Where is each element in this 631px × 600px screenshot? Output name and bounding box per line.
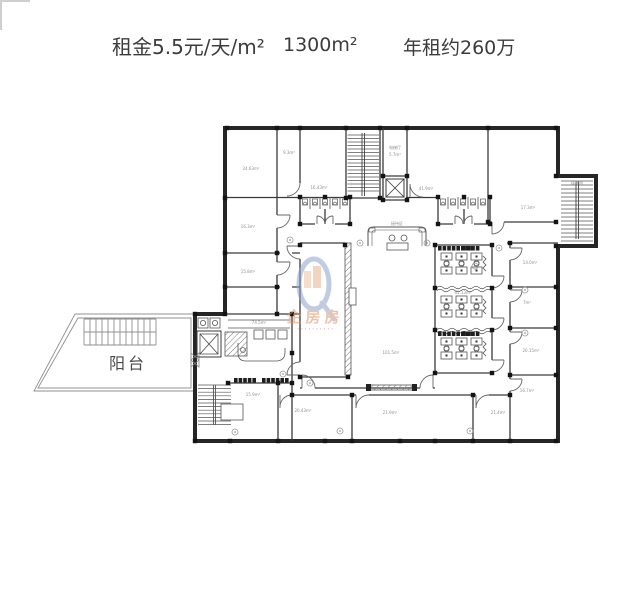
area-label: 24.63m² — [243, 166, 260, 171]
area-label: 17.3m² — [521, 205, 536, 210]
door-arcs — [277, 183, 522, 408]
detector-glyphs — [232, 237, 528, 435]
area-label: 21.9m² — [383, 410, 398, 415]
area-label: 74.5m² — [252, 320, 267, 325]
desk-clusters — [441, 253, 486, 359]
stair-right-exterior-icon — [561, 181, 593, 241]
stair-top-rails — [362, 133, 365, 196]
area-label: 5.7m² — [389, 152, 401, 157]
area-label: 15.8m² — [241, 269, 256, 274]
area-label: 101.5m² — [383, 350, 400, 355]
area-label: 16.7m² — [520, 388, 535, 393]
area-label: 20.43m² — [295, 408, 312, 413]
elevator-service-icon — [197, 331, 221, 357]
area-label: 16.3m² — [241, 224, 256, 229]
area-label: 电梯厅 — [389, 144, 401, 150]
watermark-building-icon — [313, 266, 321, 288]
floor-plan-svg: 阳台 — [0, 0, 631, 600]
balcony-label: 阳台 — [109, 354, 147, 373]
area-label: 15.9m² — [246, 392, 261, 397]
stair-right-rails — [576, 181, 579, 239]
area-label: 9.3m² — [283, 150, 295, 155]
area-label: 接待区 — [391, 220, 403, 226]
elevator-top-icon — [386, 179, 404, 197]
watermark: 企房房 ∙ ∙ ∙ ∙ ∙ ∙ ∙ ∙ ∙ ∙ — [285, 259, 343, 331]
balcony — [34, 314, 194, 391]
watermark-building-icon — [304, 271, 311, 288]
area-label: 楼梯间 — [571, 179, 583, 185]
plant-icon — [483, 341, 486, 356]
balcony-grid — [84, 319, 156, 345]
area-label: 20.15m² — [523, 348, 540, 353]
stair-top-icon — [348, 135, 380, 191]
area-label: 14.0m² — [523, 260, 538, 265]
area-label: 16.43m² — [311, 185, 328, 190]
area-label: 61.13m² — [455, 290, 472, 295]
watermark-subtext: ∙ ∙ ∙ ∙ ∙ ∙ ∙ ∙ ∙ ∙ — [297, 326, 333, 331]
plant-icon — [483, 256, 486, 271]
listing-floorplan-page: 租金5.5元/天/m² 1300m² 年租约260万 阳台 — [0, 0, 631, 600]
area-label: 7m² — [523, 300, 531, 305]
area-label: 41.9m² — [419, 186, 434, 191]
watermark-brand: 企房房 — [285, 308, 343, 326]
area-label: 21.4m² — [491, 410, 506, 415]
plant-icon — [483, 299, 486, 314]
stair-bottom-left-extra — [214, 385, 244, 425]
reception-desk — [368, 227, 426, 250]
